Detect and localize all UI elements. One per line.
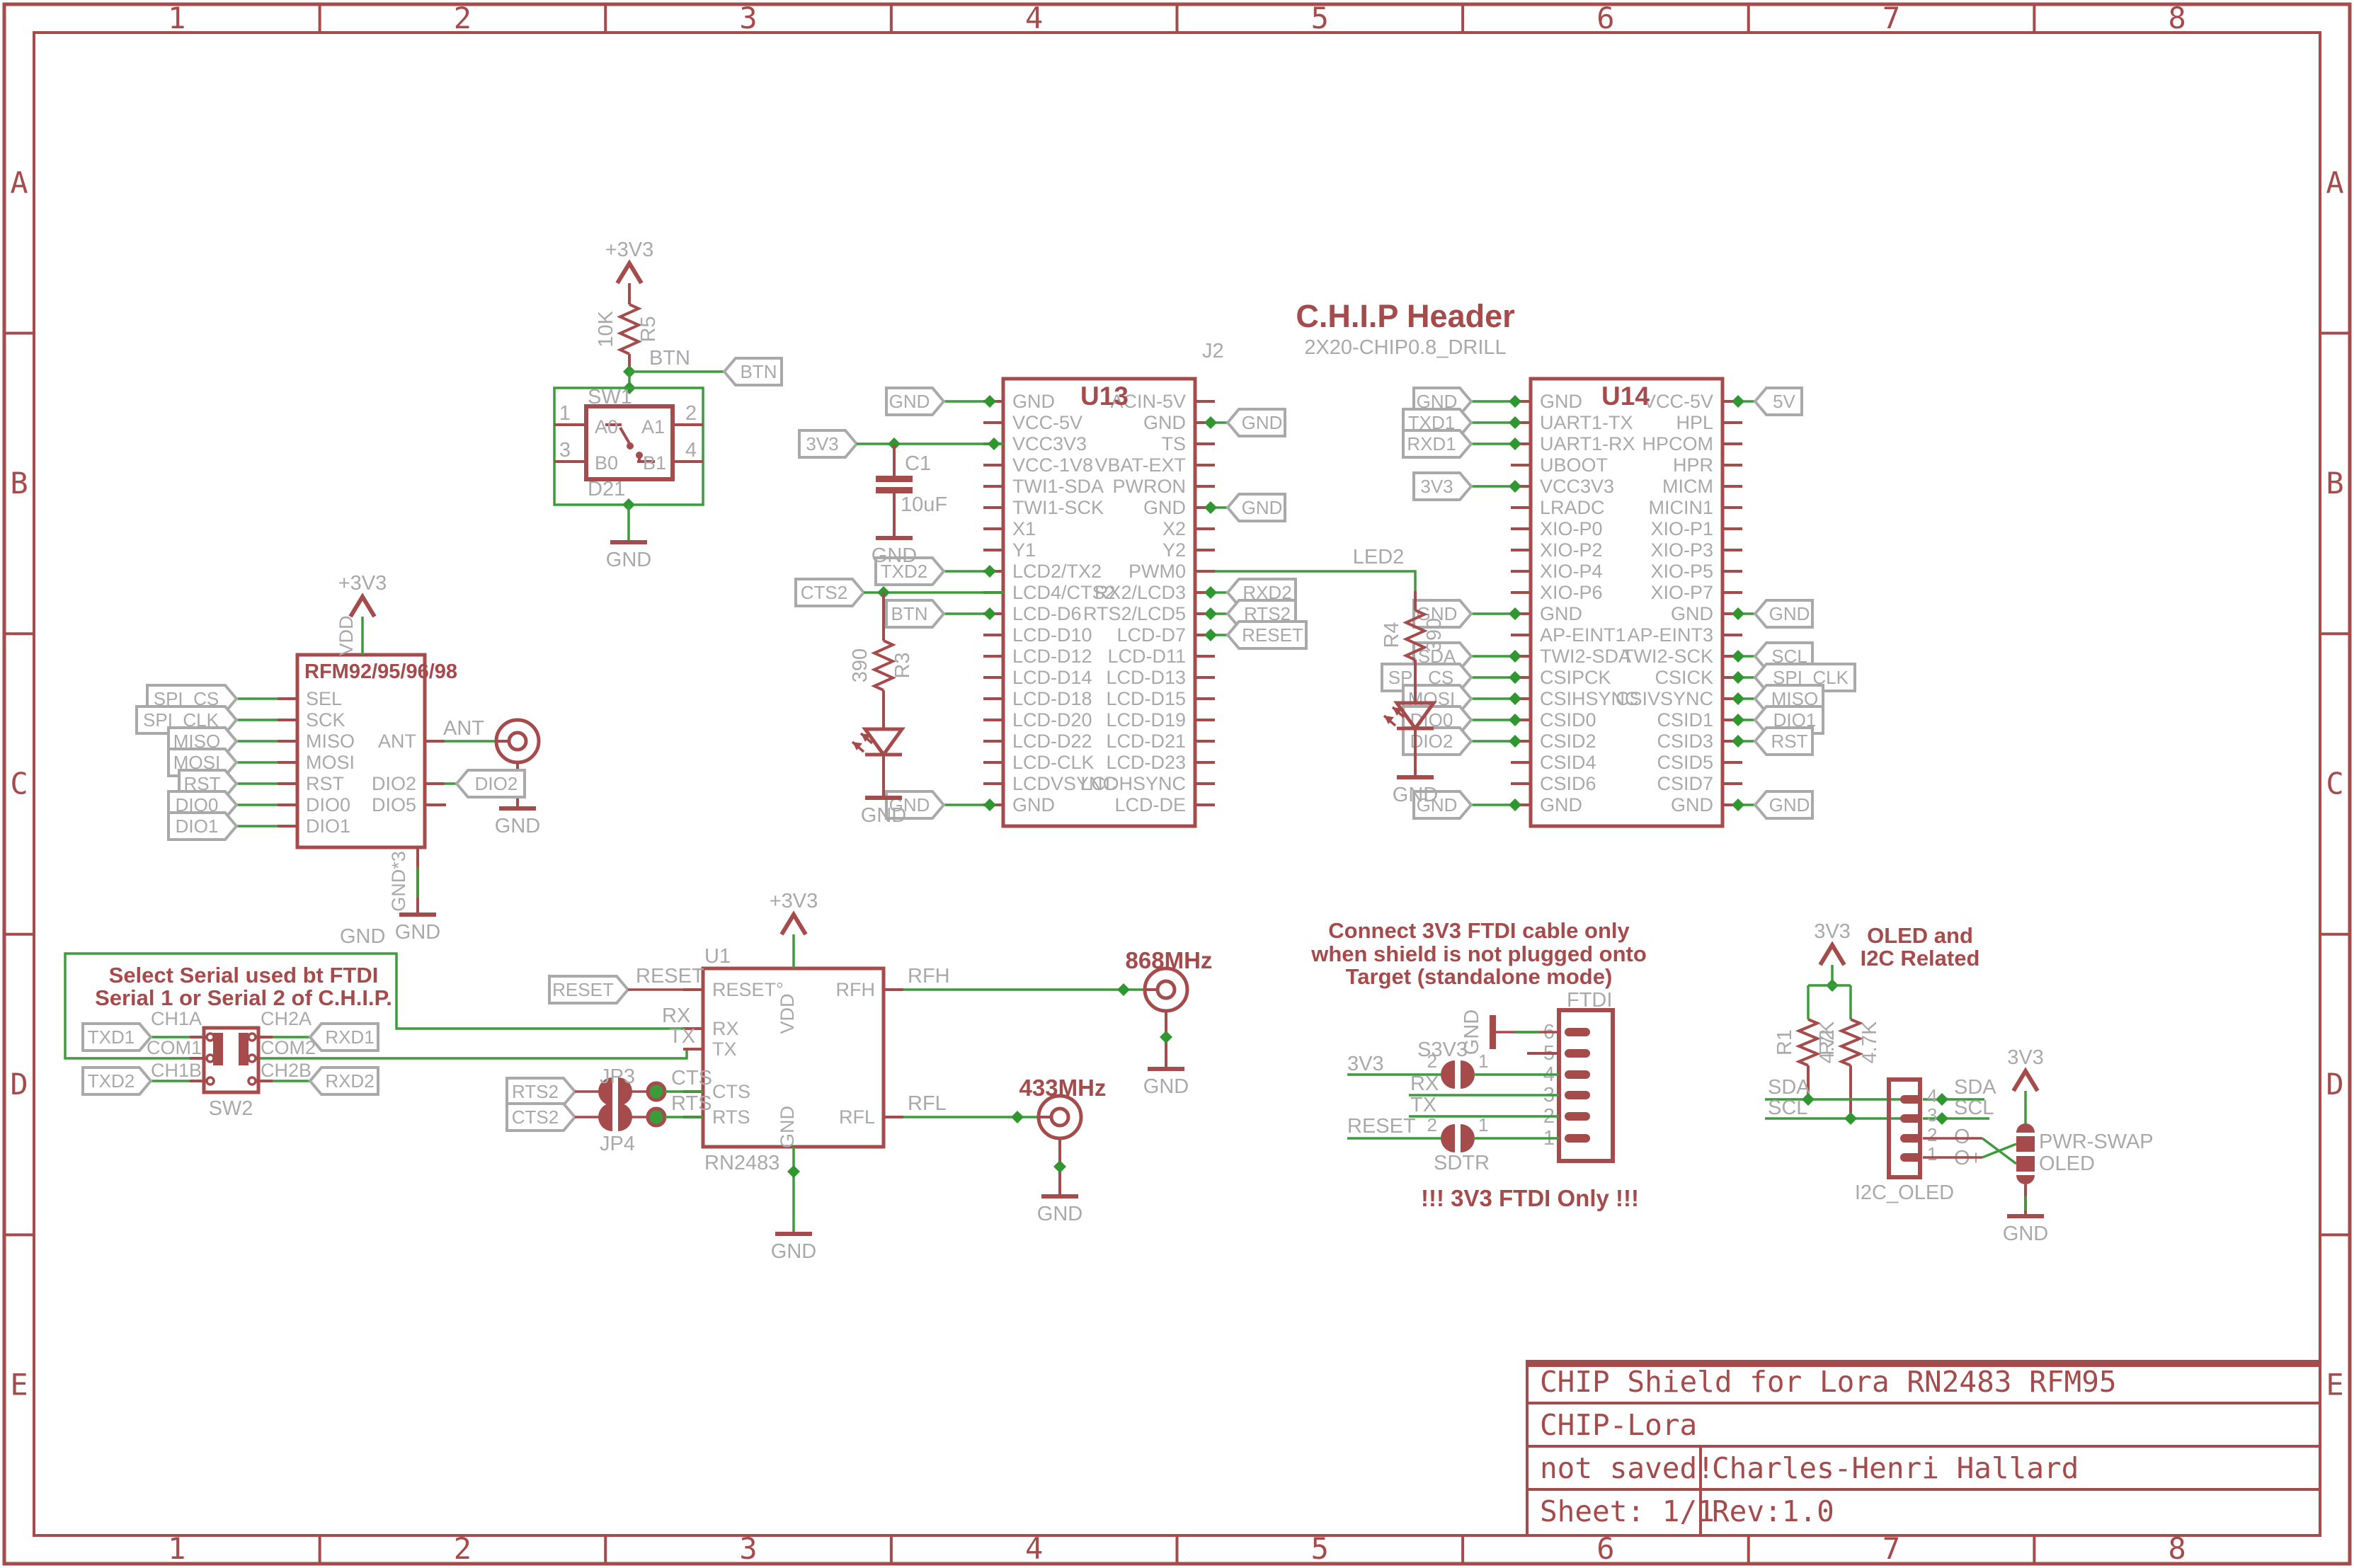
jp4-jumper[interactable] (598, 1103, 632, 1131)
cap-plate (876, 487, 913, 493)
pin-label: CSID1 (1657, 709, 1713, 731)
pin-label: GND (1143, 412, 1186, 433)
jumper-pin-number: 1 (1478, 1114, 1488, 1135)
title-block-sheet: Sheet: 1/1 (1540, 1494, 1715, 1528)
pin-label: UBOOT (1540, 454, 1608, 476)
gnd-symbol[interactable]: GND (606, 542, 651, 571)
sw2-pad (207, 1055, 214, 1062)
junction-dot (1204, 416, 1217, 429)
antenna-inner (1158, 981, 1175, 998)
jumper-pad (598, 1103, 612, 1131)
net-flag-gnd[interactable]: GND (1755, 600, 1812, 627)
sw1-pin-number: 1 (559, 402, 571, 425)
flag-label: RTS2 (512, 1081, 559, 1102)
reset-net-label: RESET (636, 965, 704, 988)
power-symbol[interactable]: 3V3 (2007, 1046, 2044, 1091)
pin-label: XIO-P4 (1540, 561, 1603, 582)
pin-label: AP-EINT1 (1540, 624, 1626, 646)
junction-dot (787, 1165, 800, 1178)
pin-label: MICIN1 (1648, 497, 1713, 518)
i2c-oled-pad (1900, 1153, 1921, 1162)
pin-label: LCDHSYNC (1080, 773, 1186, 794)
sw2-pad (207, 1077, 214, 1085)
power-symbol[interactable]: +3V3 (770, 890, 818, 934)
u13-ic[interactable]: GNDACIN-5VVCC-5VGNDVCC3V3TSVCC-1V8VBAT-E… (983, 379, 1215, 826)
pin-label: LCD-D13 (1106, 667, 1186, 688)
btn-sw1-circuit[interactable]: +3V310KR5BTNBTNSW1D211234A0A1B0B1GND (554, 239, 782, 571)
junction-dot (1732, 735, 1744, 748)
junction-dot (1732, 395, 1744, 408)
led2-net-label: LED2 (1353, 546, 1405, 568)
oled-i2c-section[interactable]: OLED andI2C Related3V3R14.7KR24.7KSDASCL… (1765, 920, 2154, 1245)
junction-dot (1117, 983, 1130, 996)
sw1-pin-number: 3 (559, 439, 571, 462)
junction-dot (1204, 607, 1217, 620)
cts-net-label: CTS (671, 1067, 712, 1089)
flag-label: DIO1 (176, 816, 219, 837)
sw2-pin-label: CH1B (151, 1060, 202, 1081)
pin-label: LCD-D14 (1012, 667, 1092, 688)
flag-label: GND (1769, 603, 1810, 624)
gnd-symbol[interactable]: GND (495, 808, 540, 837)
wire-pad[interactable] (648, 1109, 665, 1126)
ftdi-pad (1565, 1112, 1590, 1121)
net-flag-rxd1[interactable]: RXD1 (310, 1024, 378, 1051)
resistor-zigzag (874, 641, 893, 690)
flag-label: RXD1 (325, 1026, 374, 1048)
gnd-label: GND (2003, 1223, 2048, 1245)
power-label: 3V3 (1814, 920, 1851, 943)
sw1-pin-label: A0 (595, 416, 618, 437)
frame-row-label: C (10, 767, 28, 801)
frame-row-label: E (2326, 1368, 2343, 1402)
junction-dot (1011, 1111, 1024, 1123)
pin-label: MICM (1662, 476, 1713, 497)
power-arrow-icon (1820, 945, 1844, 965)
gnd-symbol[interactable]: GND (1143, 1069, 1189, 1098)
pin-label: TWI1-SCK (1012, 497, 1104, 518)
jumper-pad (2016, 1136, 2035, 1152)
jumper-pad (1461, 1060, 1475, 1089)
frame-column-label: 1 (168, 1531, 185, 1566)
resistor-zigzag (1841, 1019, 1860, 1065)
rx-net-label: RX (1410, 1072, 1439, 1095)
wire[interactable] (1982, 1144, 2016, 1157)
cap-plate (876, 476, 913, 482)
i2c-oled-pad (1900, 1095, 1921, 1104)
frame-column-label: 4 (1025, 1, 1043, 35)
junction-dot (1732, 714, 1744, 726)
ftdi-section[interactable]: Connect 3V3 FTDI cable onlywhen shield i… (1310, 918, 1647, 1211)
junction-dot (983, 799, 996, 811)
pin-label: RFL (839, 1106, 875, 1128)
sw1-part: D21 (588, 478, 625, 500)
ftdi-warning: when shield is not plugged onto (1310, 942, 1647, 966)
tx-net-label: TX (1410, 1094, 1436, 1116)
u14-ic[interactable]: GNDVCC-5VUART1-TXHPLUART1-RXHPCOMUBOOTHP… (1511, 379, 1742, 826)
pin-label: CSID4 (1540, 752, 1596, 773)
gnd-label: GND (771, 1240, 816, 1263)
title-block-rev: Rev:1.0 (1712, 1494, 1834, 1528)
title-block-author: Charles-Henri Hallard (1712, 1451, 2079, 1485)
btn-net-label: BTN (649, 347, 690, 370)
pin-label: VCC3V3 (1012, 433, 1087, 454)
u1-rn2483[interactable]: U1RN2483RESET°RXTXCTSRTSVDDGNDRFHRFL+3V3… (507, 890, 1212, 1263)
loop-net-label: GND (340, 925, 385, 948)
sw2-pin-label: COM2 (261, 1037, 316, 1058)
pin-label: LCD-DE (1114, 794, 1186, 816)
flag-label: BTN (891, 603, 928, 624)
flag-label: RXD2 (325, 1070, 374, 1092)
junction-dot (1509, 714, 1521, 726)
junction-dot (1509, 650, 1521, 663)
net-flag-rxd2[interactable]: RXD2 (310, 1068, 378, 1094)
pin-label: LCD-CLK (1012, 752, 1095, 773)
ant-connector[interactable] (496, 720, 539, 762)
i2c-oled-pin-number: 3 (1927, 1104, 1937, 1126)
frame-row-label: A (10, 165, 28, 200)
pin-label: LCD-D22 (1012, 731, 1092, 752)
junction-dot (1509, 692, 1521, 705)
u1-ref: U1 (704, 945, 731, 968)
gnd-bar-vertical (1490, 1015, 1496, 1049)
rfm-ref: RFM92/95/96/98 (304, 660, 457, 683)
reset-net-label: RESET (1347, 1115, 1416, 1138)
pin-label: RTS2/LCD5 (1083, 603, 1186, 624)
gnd-label: GND (395, 921, 440, 944)
j2-ref: J2 (1202, 340, 1224, 362)
pwr-swap-jumper[interactable] (2016, 1123, 2035, 1184)
junction-dot (1509, 735, 1521, 748)
i2c-oled-connector[interactable] (1889, 1080, 1920, 1177)
net-flag-cts2[interactable]: CTS2 (796, 579, 864, 606)
junction-dot (1936, 1093, 1948, 1106)
tx-net-label: TX (669, 1025, 695, 1048)
gnd-symbol[interactable]: GND (2003, 1216, 2048, 1245)
c1-capacitor[interactable]: C110uFGND (872, 444, 947, 567)
flag-label: RESET (552, 979, 614, 1000)
ftdi-warning: Target (standalone mode) (1346, 964, 1613, 989)
junction-dot (1204, 501, 1217, 514)
jumper-pad (1441, 1124, 1455, 1152)
i2c-oled-ref: I2C_OLED (1855, 1181, 1954, 1204)
junction-dot (1509, 607, 1521, 620)
junction-dot (1844, 1112, 1857, 1125)
net-flag-5v[interactable]: 5V (1755, 388, 1802, 415)
ftdi-warning: Connect 3V3 FTDI cable only (1328, 918, 1630, 943)
power-symbol[interactable]: +3V3 (338, 572, 387, 617)
pin-label: UART1-RX (1540, 433, 1635, 454)
net-flag-gnd[interactable]: GND (886, 388, 944, 415)
sw2-pad (248, 1055, 256, 1062)
junction-dot (1732, 692, 1744, 705)
net-flag-gnd[interactable]: GND (1228, 494, 1285, 521)
flag-label: TXD2 (88, 1070, 135, 1092)
pin-label: DIO1 (306, 816, 350, 837)
resistor-label: 10K (595, 311, 617, 348)
resistor-label: R2 (1816, 1029, 1839, 1055)
pin-label: RESET° (712, 979, 784, 1000)
pin-label: VCC-5V (1643, 391, 1713, 412)
pin-label: XIO-P1 (1650, 518, 1713, 539)
jumper-pin-number: 1 (1478, 1051, 1488, 1072)
power-arrow-icon (350, 597, 375, 617)
pin-label: Y2 (1162, 539, 1186, 561)
junction-dot (1732, 607, 1744, 620)
rfh-net-label: RFH (908, 965, 950, 988)
net-flag-3v3[interactable]: 3V3 (1414, 473, 1471, 500)
pin-label: CTS (712, 1081, 750, 1102)
schematic-canvas: 1122334455667788AABBCCDDEECHIP Shield fo… (0, 0, 2354, 1568)
pin-label: Y1 (1012, 539, 1036, 561)
pin-label: CSID0 (1540, 709, 1596, 731)
flag-label: RESET (1242, 624, 1303, 646)
sda-net-label: SDA (1768, 1076, 1810, 1099)
gnd-label: GND (1393, 784, 1438, 806)
sw2-pin-label: CH1A (151, 1008, 202, 1029)
net-flag-cts2[interactable]: CTS2 (507, 1104, 575, 1131)
pin-label: GND (1671, 603, 1713, 624)
pin-label: UART1-TX (1540, 412, 1633, 433)
scl-net-label: SCL (1768, 1097, 1807, 1119)
flag-label: GND (889, 391, 930, 412)
c1-value: 10uF (901, 493, 947, 516)
gnd-symbol[interactable]: GND (1393, 777, 1438, 806)
jumper-pad (1441, 1060, 1455, 1089)
pin-label: XIO-P7 (1650, 582, 1713, 603)
ftdi-pad (1565, 1070, 1590, 1079)
junction-dot (1732, 650, 1744, 663)
sw2-pin-label: CH2A (261, 1008, 312, 1029)
title-block-title: CHIP Shield for Lora RN2483 RFM95 (1540, 1365, 2117, 1399)
gnd-label: GND (861, 804, 906, 827)
pin-label: DIO5 (372, 794, 416, 816)
net-flag-rst[interactable]: RST (1755, 728, 1812, 755)
ftdi-pad (1565, 1028, 1590, 1036)
junction-dot (1509, 480, 1521, 493)
pin-label: CSIPCK (1540, 667, 1611, 688)
pin-label: LCD-D18 (1012, 688, 1092, 709)
resistor-zigzag (1799, 1019, 1817, 1065)
frame-column-label: 5 (1311, 1531, 1329, 1566)
pin-label: CSID5 (1657, 752, 1713, 773)
sw1-pin-number: 4 (685, 439, 697, 462)
rts-net-label: RTS (671, 1092, 712, 1115)
net-flag-rts2[interactable]: RTS2 (507, 1078, 575, 1105)
net-flag-rxd1[interactable]: RXD1 (1403, 430, 1471, 457)
sw1-pin-label: B1 (643, 452, 666, 474)
frame-column-label: 8 (2169, 1, 2186, 35)
pin-label: TX (712, 1038, 737, 1060)
net-flag-btn[interactable]: BTN (886, 600, 944, 627)
sw1-pin-number: 2 (685, 402, 697, 425)
oled-note: I2C Related (1861, 946, 1980, 971)
pin-label: RX (712, 1018, 739, 1039)
wire-pad[interactable] (648, 1083, 665, 1100)
ant-net-label: ANT (443, 717, 484, 740)
flag-label: GND (1242, 412, 1283, 433)
net-flag-btn[interactable]: BTN (724, 358, 782, 385)
oled-note: OLED and (1867, 923, 1973, 948)
power-arrow-icon (782, 915, 806, 934)
gnd-symbol[interactable]: GND (395, 915, 440, 944)
antenna-868[interactable] (1145, 968, 1187, 1011)
pin-label: XIO-P3 (1650, 539, 1713, 561)
frame-row-label: E (10, 1368, 28, 1402)
i2c-oled-pin-number: 1 (1927, 1143, 1937, 1164)
flag-label: 5V (1773, 391, 1795, 412)
gnd-symbol[interactable]: GND (771, 1234, 816, 1263)
pin-label: LCD-D7 (1116, 624, 1186, 646)
junction-dot (983, 565, 996, 578)
resistor-label: R1 (1773, 1029, 1796, 1055)
pin-label: RTS (712, 1106, 750, 1128)
pin-label: LCD-D11 (1107, 646, 1186, 667)
pin-label: MISO (306, 731, 355, 752)
sw2-pin-label: CH2B (261, 1060, 312, 1081)
pin-label: LCD-D10 (1012, 624, 1092, 646)
frame-row-label: B (10, 466, 28, 500)
pin-label: TWI2-SDA (1540, 646, 1631, 667)
sw2-switch[interactable] (204, 1028, 258, 1092)
pin-label: GND (1143, 497, 1186, 518)
pin-label: GND (1012, 794, 1055, 816)
power-label: +3V3 (605, 239, 654, 261)
net-flag-txd1[interactable]: TXD1 (83, 1024, 151, 1051)
jp3-ref: JP3 (600, 1065, 635, 1088)
chip-header-footprint: 2X20-CHIP0.8_DRILL (1304, 336, 1506, 359)
sw1-ref: SW1 (588, 386, 632, 408)
net-flag-dio2[interactable]: DIO2 (457, 770, 525, 797)
pin-label: SCK (306, 709, 345, 731)
pin-label: LCD-D12 (1012, 646, 1092, 667)
junction-dot (983, 395, 996, 408)
net-flag-gnd[interactable]: GND (1755, 791, 1812, 818)
pin-label: LCD2/TX2 (1012, 561, 1102, 582)
power-label: +3V3 (338, 572, 387, 595)
sdtr-jumper[interactable] (1441, 1124, 1475, 1152)
ftdi-pad (1565, 1091, 1590, 1099)
net-flag-dio2[interactable]: DIO2 (1403, 728, 1471, 755)
pin-label: TWI1-SDA (1012, 476, 1104, 497)
pin-label: GND (1671, 794, 1713, 816)
pin-label: VBAT-EXT (1095, 454, 1186, 476)
flag-label: 3V3 (806, 433, 838, 454)
serial-select-note: Select Serial used bt FTDI (109, 963, 379, 988)
sw2-ref: SW2 (209, 1097, 253, 1120)
pin-label: VDD (336, 615, 357, 656)
pin-label: XIO-P6 (1540, 582, 1603, 603)
sw1-contact (627, 442, 634, 450)
pin-label: HPL (1676, 412, 1713, 433)
pin-label: VCC3V3 (1540, 476, 1614, 497)
pin-label: LCD-D6 (1012, 603, 1082, 624)
sw2-pad (248, 1034, 256, 1041)
pin-label: HPR (1673, 454, 1713, 476)
jumper-pad (618, 1103, 632, 1131)
pin-label: CSIVSYNC (1616, 688, 1713, 709)
pin-label: CSID6 (1540, 773, 1596, 794)
resistor-r3[interactable]: 390R3 (849, 641, 914, 690)
frame-column-label: 3 (739, 1531, 757, 1566)
junction-dot (1732, 799, 1744, 811)
antenna-433[interactable] (1039, 1096, 1081, 1138)
net-flag-dio1[interactable]: DIO1 (168, 813, 236, 840)
frame-row-label: C (2326, 767, 2343, 801)
jumper-pad (2016, 1123, 2035, 1133)
title-block-project: CHIP-Lora (1540, 1408, 1697, 1442)
rx-net-label: RX (662, 1005, 690, 1027)
junction-dot (1160, 1031, 1172, 1043)
net-flag-reset[interactable]: RESET (1228, 622, 1306, 648)
pin-label: RST (306, 773, 344, 794)
resistor-label: 390 (1423, 618, 1446, 652)
pin-label: LRADC (1540, 497, 1605, 518)
pin-label: VDD (777, 993, 798, 1034)
ftdi-only-note: !!! 3V3 FTDI Only !!! (1421, 1185, 1639, 1211)
frame-row-label: D (10, 1067, 28, 1101)
pwr-swap-ref: PWR-SWAP (2039, 1131, 2154, 1153)
o-minus-label: O- (1954, 1126, 1977, 1148)
junction-dot (1936, 1112, 1948, 1125)
s3v3-jumper[interactable] (1441, 1060, 1475, 1089)
gnd-symbol[interactable]: GND (1037, 1196, 1082, 1225)
jp4-ref: JP4 (600, 1133, 635, 1155)
gnd-label: GND (872, 544, 917, 567)
resistor-label: R5 (637, 316, 660, 342)
title-block: CHIP Shield for Lora RN2483 RFM95CHIP-Lo… (1527, 1361, 2320, 1535)
rfm-module[interactable]: RFM92/95/96/98SELSPI_CSSCKSPI_CLKMISOMIS… (137, 572, 540, 944)
led-symbol[interactable] (852, 729, 902, 755)
power-symbol[interactable]: +3V3 (605, 239, 654, 283)
net-flag-3v3[interactable]: 3V3 (799, 430, 857, 457)
sw2-pad (207, 1034, 214, 1041)
junction-dot (1204, 586, 1217, 599)
i2c-oled-pad (1900, 1114, 1921, 1123)
pin-label: GND (777, 1106, 798, 1148)
pin-label: LCD-D21 (1106, 731, 1186, 752)
frame-column-label: 2 (454, 1531, 472, 1566)
i2c-oled-pad (1900, 1134, 1921, 1143)
pin-label: X2 (1162, 518, 1186, 539)
frame-column-label: 6 (1596, 1, 1614, 35)
pin-label: X1 (1012, 518, 1036, 539)
junction-dot (1509, 799, 1521, 811)
junction-dot (1509, 395, 1521, 408)
flag-label: 3V3 (1420, 476, 1453, 497)
pin-label: PWRON (1113, 476, 1187, 497)
title-block-saved: not saved! (1540, 1451, 1715, 1485)
net-flag-reset[interactable]: RESET (549, 976, 628, 1003)
sw2-slider (239, 1033, 248, 1065)
gnd-symbol[interactable]: GND (872, 538, 917, 567)
net-flag-txd2[interactable]: TXD2 (83, 1068, 151, 1094)
junction-dot (1204, 629, 1217, 641)
i2c-oled-pin-number: 2 (1927, 1124, 1937, 1145)
pin-label: LCD-D20 (1012, 709, 1092, 731)
pin-label: TWI2-SCK (1622, 646, 1713, 667)
power-symbol[interactable]: 3V3 (1814, 920, 1851, 965)
frame-row-label: B (2326, 466, 2343, 500)
gnd-label: GND (495, 815, 540, 837)
jumper-pin-number: 2 (1427, 1114, 1437, 1135)
junction-dot (1732, 671, 1744, 684)
pin-label: LCD-D15 (1106, 688, 1186, 709)
gnd-label: GND (606, 549, 651, 571)
v3v3-net-label: 3V3 (1347, 1053, 1384, 1075)
junction-dot (1509, 671, 1521, 684)
net-flag-gnd[interactable]: GND (1228, 409, 1285, 436)
